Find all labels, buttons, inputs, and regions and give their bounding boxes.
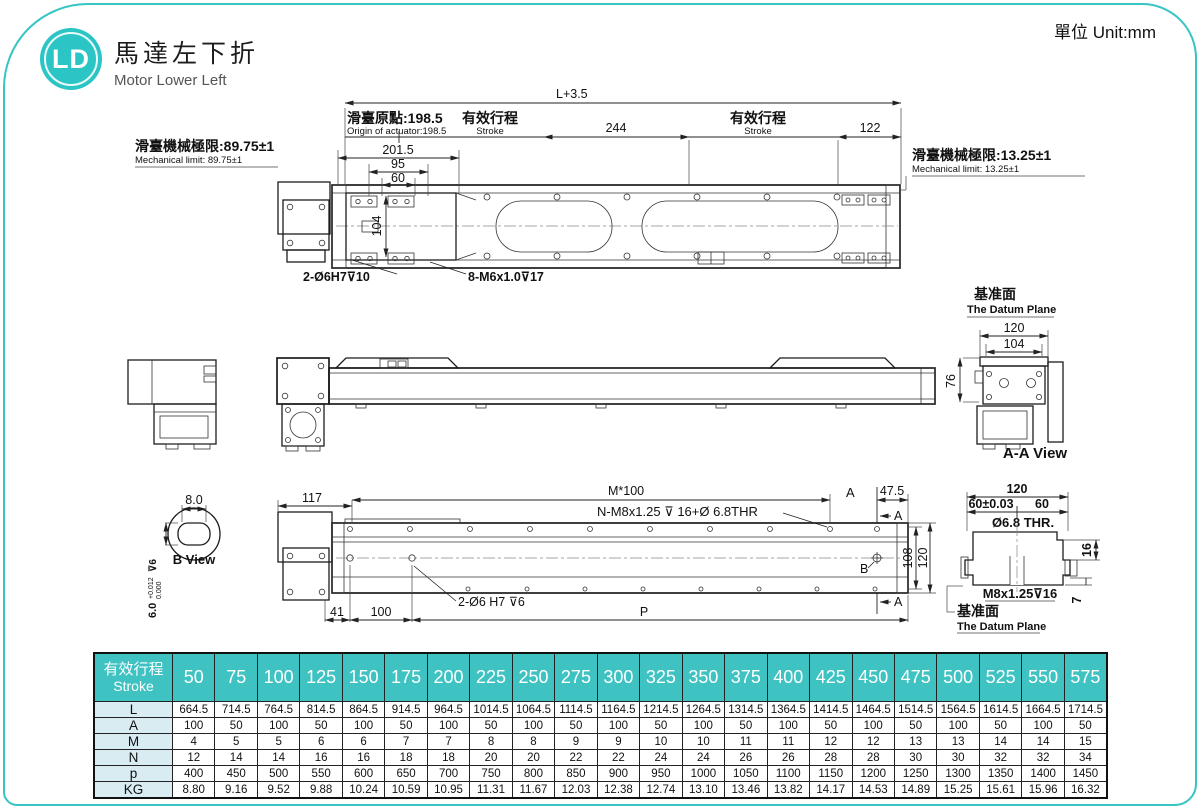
stroke-col-200: 200 (427, 653, 469, 702)
dim-41: 41 (330, 605, 344, 619)
b-tol-base: 6.0 (147, 603, 159, 618)
dim-120-bottom: 120 (916, 548, 930, 569)
cell: 9.52 (257, 782, 299, 799)
stroke-table-wrap: 有效行程Stroke507510012515017520022525027530… (93, 652, 1108, 799)
stroke-col-150: 150 (342, 653, 384, 702)
stroke-label-en-2: Stroke (744, 126, 771, 137)
cell: 600 (342, 766, 384, 782)
cell: 9 (597, 734, 639, 750)
cell: 9.16 (215, 782, 257, 799)
cell: 10.24 (342, 782, 384, 799)
table-row-A: A100501005010050100501005010050100501005… (94, 718, 1107, 734)
rail-body-top (332, 185, 900, 268)
dim-201-5: 201.5 (382, 143, 413, 157)
bottom-view-drawing (278, 512, 908, 600)
dim-108: 108 (901, 548, 915, 569)
cell: 1314.5 (725, 702, 767, 718)
cell: 13.10 (682, 782, 724, 799)
dim-100: 100 (371, 605, 392, 619)
cell: 20 (512, 750, 554, 766)
stroke-col-525: 525 (979, 653, 1021, 702)
cell: 11.67 (512, 782, 554, 799)
table-row-KG: KG8.809.169.529.8810.2410.5910.9511.3111… (94, 782, 1107, 799)
b-tol-upper: +0.012 (148, 577, 155, 599)
dim-117: 117 (302, 491, 322, 505)
cell: 1014.5 (470, 702, 512, 718)
cell: 15.61 (979, 782, 1021, 799)
limit-left-en: Mechanical limit: 89.75±1 (135, 155, 242, 166)
dim-47-5: 47.5 (880, 484, 904, 498)
cell: 1614.5 (979, 702, 1021, 718)
cell: 1664.5 (1022, 702, 1064, 718)
b-tol-lower: 0.000 (156, 581, 163, 599)
cell: 11 (725, 734, 767, 750)
dim-p: P (640, 605, 648, 619)
dim-244: 244 (606, 121, 627, 135)
page: LD 馬達左下折 Motor Lower Left 單位 Unit:mm (0, 0, 1200, 809)
cell: 32 (1022, 750, 1064, 766)
cell: 10.59 (385, 782, 427, 799)
cell: 10 (640, 734, 682, 750)
cell: 15.96 (1022, 782, 1064, 799)
sec-m8-label: M8x1.25⊽16 (983, 586, 1058, 601)
stroke-col-325: 325 (640, 653, 682, 702)
cell: 50 (385, 718, 427, 734)
cell: 5 (257, 734, 299, 750)
cell: 50 (979, 718, 1021, 734)
cell: 1364.5 (767, 702, 809, 718)
cell: 1514.5 (894, 702, 936, 718)
cell: 50 (810, 718, 852, 734)
cell: 28 (852, 750, 894, 766)
cell: 100 (173, 718, 215, 734)
hole-label-m6: 8-M6x1.0⊽17 (468, 270, 544, 284)
origin-label-en: Origin of actuator:198.5 (347, 126, 446, 137)
sec-datum-en: The Datum Plane (957, 621, 1046, 633)
cell: 12 (173, 750, 215, 766)
cell: 100 (342, 718, 384, 734)
cell: 1300 (937, 766, 979, 782)
table-row-L: L664.5714.5764.5814.5864.5914.5964.51014… (94, 702, 1107, 718)
b-view: 8.0 B View 6.0 +0.012 0.000 ⊽6 (147, 493, 220, 618)
cell: 15.25 (937, 782, 979, 799)
stroke-col-350: 350 (682, 653, 724, 702)
stroke-col-75: 75 (215, 653, 257, 702)
stroke-col-375: 375 (725, 653, 767, 702)
cell: 1350 (979, 766, 1021, 782)
cell: 664.5 (173, 702, 215, 718)
aa-dim-120: 120 (1004, 321, 1025, 335)
stroke-col-400: 400 (767, 653, 809, 702)
cell: 1564.5 (937, 702, 979, 718)
cell: 100 (427, 718, 469, 734)
b-tol-depth: ⊽6 (148, 559, 159, 572)
cell: 9.88 (300, 782, 342, 799)
cell: 814.5 (300, 702, 342, 718)
cell: 7 (385, 734, 427, 750)
cell: 50 (725, 718, 767, 734)
cell: 100 (1022, 718, 1064, 734)
cell: 30 (894, 750, 936, 766)
cell: 1000 (682, 766, 724, 782)
cell: 16 (300, 750, 342, 766)
stroke-col-175: 175 (385, 653, 427, 702)
cell: 1250 (894, 766, 936, 782)
cell: 34 (1064, 750, 1107, 766)
aa-dim-104: 104 (1004, 337, 1025, 351)
origin-label-zh: 滑臺原點:198.5 (347, 110, 443, 126)
stroke-col-425: 425 (810, 653, 852, 702)
main-side-view (277, 358, 935, 451)
b-tolerance: 6.0 +0.012 0.000 ⊽6 (147, 559, 163, 618)
cell: 20 (470, 750, 512, 766)
limit-right-zh: 滑臺機械極限:13.25±1 (912, 147, 1051, 163)
cell: 11 (767, 734, 809, 750)
row-label-A: A (94, 718, 173, 734)
stroke-col-475: 475 (894, 653, 936, 702)
cell: 12 (852, 734, 894, 750)
cell: 100 (257, 718, 299, 734)
stroke-col-50: 50 (173, 653, 215, 702)
dowel-callout: 2-Ø6 H7 ⊽6 (458, 595, 525, 609)
cell: 18 (385, 750, 427, 766)
cell: 450 (215, 766, 257, 782)
cell: 50 (300, 718, 342, 734)
cell: 650 (385, 766, 427, 782)
motor-side-view (128, 360, 216, 449)
cell: 1150 (810, 766, 852, 782)
sec-dim-16: 16 (1080, 543, 1094, 557)
dim-l-plus: L+3.5 (556, 87, 588, 101)
dim-122: 122 (860, 121, 881, 135)
bottom-view-dimensions: 117 M*100 N-M8x1.25 ⊽ 16+Ø 6.8THR A 47.5… (278, 484, 936, 622)
cell: 50 (555, 718, 597, 734)
row-label-p: p (94, 766, 173, 782)
cell: 1400 (1022, 766, 1064, 782)
cell: 10 (682, 734, 724, 750)
cell: 18 (427, 750, 469, 766)
aa-view-label: A-A View (1003, 445, 1068, 462)
cell: 8 (512, 734, 554, 750)
cell: 12.03 (555, 782, 597, 799)
cell: 22 (555, 750, 597, 766)
aa-datum-en: The Datum Plane (967, 304, 1056, 316)
sec-dim-7: 7 (1070, 596, 1084, 603)
aa-datum-zh: 基准面 (974, 286, 1016, 302)
cell: 750 (470, 766, 512, 782)
row-label-L: L (94, 702, 173, 718)
cell: 100 (767, 718, 809, 734)
cell: 24 (640, 750, 682, 766)
cell: 26 (767, 750, 809, 766)
cell: 50 (1064, 718, 1107, 734)
limit-right-en: Mechanical limit: 13.25±1 (912, 164, 1019, 175)
cell: 1714.5 (1064, 702, 1107, 718)
cell: 50 (640, 718, 682, 734)
cell: 850 (555, 766, 597, 782)
cell: 100 (597, 718, 639, 734)
limit-left-zh: 滑臺機械極限:89.75±1 (135, 138, 274, 154)
cell: 500 (257, 766, 299, 782)
cell: 5 (215, 734, 257, 750)
cell: 13.46 (725, 782, 767, 799)
cell: 714.5 (215, 702, 257, 718)
section-view: 120 60±0.03 60 Ø6.8 THR. 16 7 M8x1.25⊽16… (947, 482, 1100, 633)
thr-hole-label: Ø6.8 THR. (992, 515, 1054, 530)
stroke-label-zh-2: 有效行程 (730, 110, 786, 126)
cell: 1464.5 (852, 702, 894, 718)
dim-m100: M*100 (608, 484, 644, 498)
cell: 6 (300, 734, 342, 750)
cell: 4 (173, 734, 215, 750)
cell: 700 (427, 766, 469, 782)
cell: 26 (725, 750, 767, 766)
stroke-col-550: 550 (1022, 653, 1064, 702)
cell: 14.53 (852, 782, 894, 799)
stroke-col-250: 250 (512, 653, 554, 702)
stroke-col-125: 125 (300, 653, 342, 702)
cell: 50 (894, 718, 936, 734)
cell: 22 (597, 750, 639, 766)
cell: 14 (979, 734, 1021, 750)
cell: 12 (810, 734, 852, 750)
row-label-N: N (94, 750, 173, 766)
stroke-col-100: 100 (257, 653, 299, 702)
cell: 900 (597, 766, 639, 782)
cell: 1114.5 (555, 702, 597, 718)
row-label-KG: KG (94, 782, 173, 799)
cell: 24 (682, 750, 724, 766)
b-hole-label: B (860, 562, 868, 576)
stroke-label-zh-1: 有效行程 (462, 110, 518, 126)
sec-datum-zh: 基准面 (957, 603, 999, 619)
cell: 11.31 (470, 782, 512, 799)
cell: 100 (937, 718, 979, 734)
cell: 12.38 (597, 782, 639, 799)
cell: 28 (810, 750, 852, 766)
stroke-col-275: 275 (555, 653, 597, 702)
sec-dim-60: 60 (1035, 497, 1049, 511)
cell: 30 (937, 750, 979, 766)
cell: 13 (894, 734, 936, 750)
cell: 1214.5 (640, 702, 682, 718)
stroke-col-300: 300 (597, 653, 639, 702)
cell: 400 (173, 766, 215, 782)
cell: 15 (1064, 734, 1107, 750)
cell: 1100 (767, 766, 809, 782)
cell: 14.89 (894, 782, 936, 799)
section-a-arrow-bottom: A (894, 595, 903, 609)
aa-dim-76: 76 (944, 374, 958, 388)
stroke-col-450: 450 (852, 653, 894, 702)
b-dim-8: 8.0 (185, 493, 202, 507)
cell: 16 (342, 750, 384, 766)
sec-dim-60tol: 60±0.03 (968, 497, 1013, 511)
stroke-label-en-1: Stroke (476, 126, 503, 137)
cell: 100 (682, 718, 724, 734)
stroke-table: 有效行程Stroke507510012515017520022525027530… (93, 652, 1108, 799)
cell: 950 (640, 766, 682, 782)
cell: 8 (470, 734, 512, 750)
cell: 100 (852, 718, 894, 734)
table-row-M: M455667788991010111112121313141415 (94, 734, 1107, 750)
cell: 14 (1022, 734, 1064, 750)
stroke-col-225: 225 (470, 653, 512, 702)
dim-104-top: 104 (370, 216, 384, 237)
cell: 1264.5 (682, 702, 724, 718)
section-a-label-top: A (846, 485, 855, 500)
dim-95: 95 (391, 157, 405, 171)
cell: 1200 (852, 766, 894, 782)
cell: 50 (215, 718, 257, 734)
cell: 864.5 (342, 702, 384, 718)
carriage-side (336, 358, 458, 368)
cell: 14 (215, 750, 257, 766)
table-row-p: p400450500550600650700750800850900950100… (94, 766, 1107, 782)
cell: 13.82 (767, 782, 809, 799)
aa-view: 基准面 The Datum Plane 120 104 7 (944, 286, 1067, 462)
cell: 964.5 (427, 702, 469, 718)
table-row-N: N121414161618182020222224242626282830303… (94, 750, 1107, 766)
cell: 7 (427, 734, 469, 750)
cell: 100 (512, 718, 554, 734)
cell: 13 (937, 734, 979, 750)
cell: 764.5 (257, 702, 299, 718)
thread-callout: N-M8x1.25 ⊽ 16+Ø 6.8THR (597, 504, 758, 519)
cell: 800 (512, 766, 554, 782)
row-label-M: M (94, 734, 173, 750)
cell: 16.32 (1064, 782, 1107, 799)
stroke-header-cell: 有效行程Stroke (94, 653, 173, 702)
b-view-label: B View (173, 552, 216, 567)
cell: 6 (342, 734, 384, 750)
hole-label-dowel: 2-Ø6H7⊽10 (303, 270, 370, 284)
sec-dim-120: 120 (1007, 482, 1028, 496)
cell: 10.95 (427, 782, 469, 799)
cell: 1064.5 (512, 702, 554, 718)
cell: 14 (257, 750, 299, 766)
cell: 550 (300, 766, 342, 782)
stroke-col-500: 500 (937, 653, 979, 702)
cell: 1414.5 (810, 702, 852, 718)
cell: 32 (979, 750, 1021, 766)
stroke-col-575: 575 (1064, 653, 1107, 702)
cell: 9 (555, 734, 597, 750)
cell: 14.17 (810, 782, 852, 799)
section-a-arrow-top: A (894, 509, 903, 523)
carriage-top (346, 193, 456, 260)
cell: 12.74 (640, 782, 682, 799)
cell: 50 (470, 718, 512, 734)
cell: 8.80 (173, 782, 215, 799)
cell: 914.5 (385, 702, 427, 718)
cell: 1450 (1064, 766, 1107, 782)
cell: 1050 (725, 766, 767, 782)
cell: 1164.5 (597, 702, 639, 718)
dim-60: 60 (391, 171, 405, 185)
